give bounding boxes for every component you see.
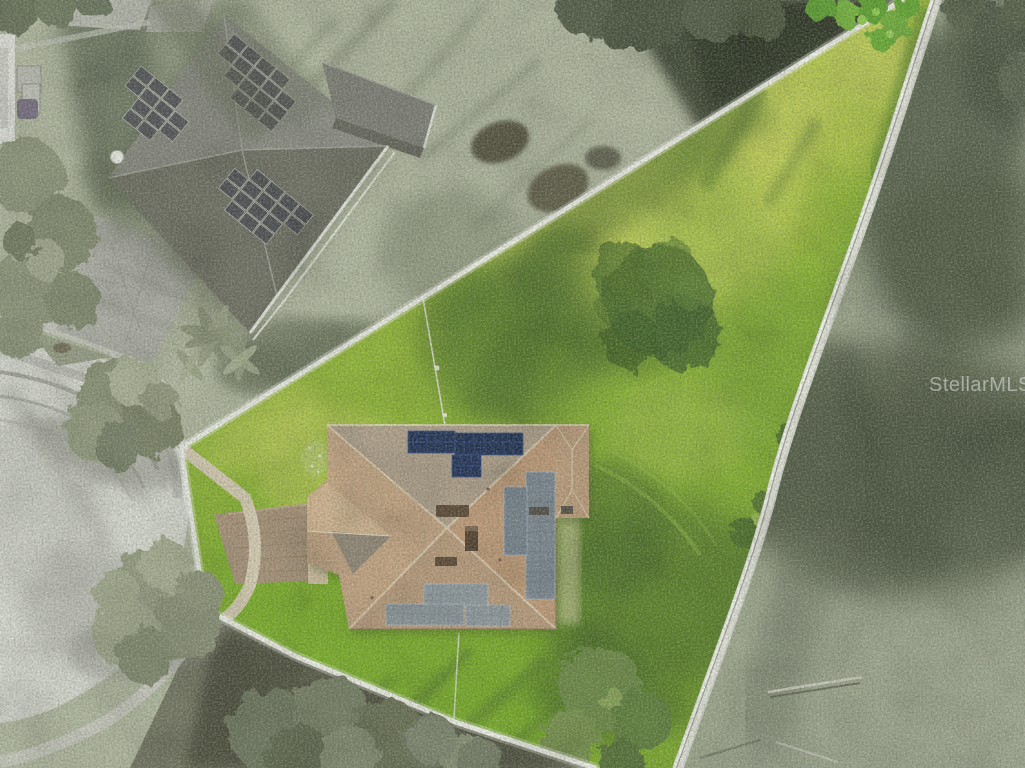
- svg-text:StellarMLS: StellarMLS: [929, 374, 1025, 396]
